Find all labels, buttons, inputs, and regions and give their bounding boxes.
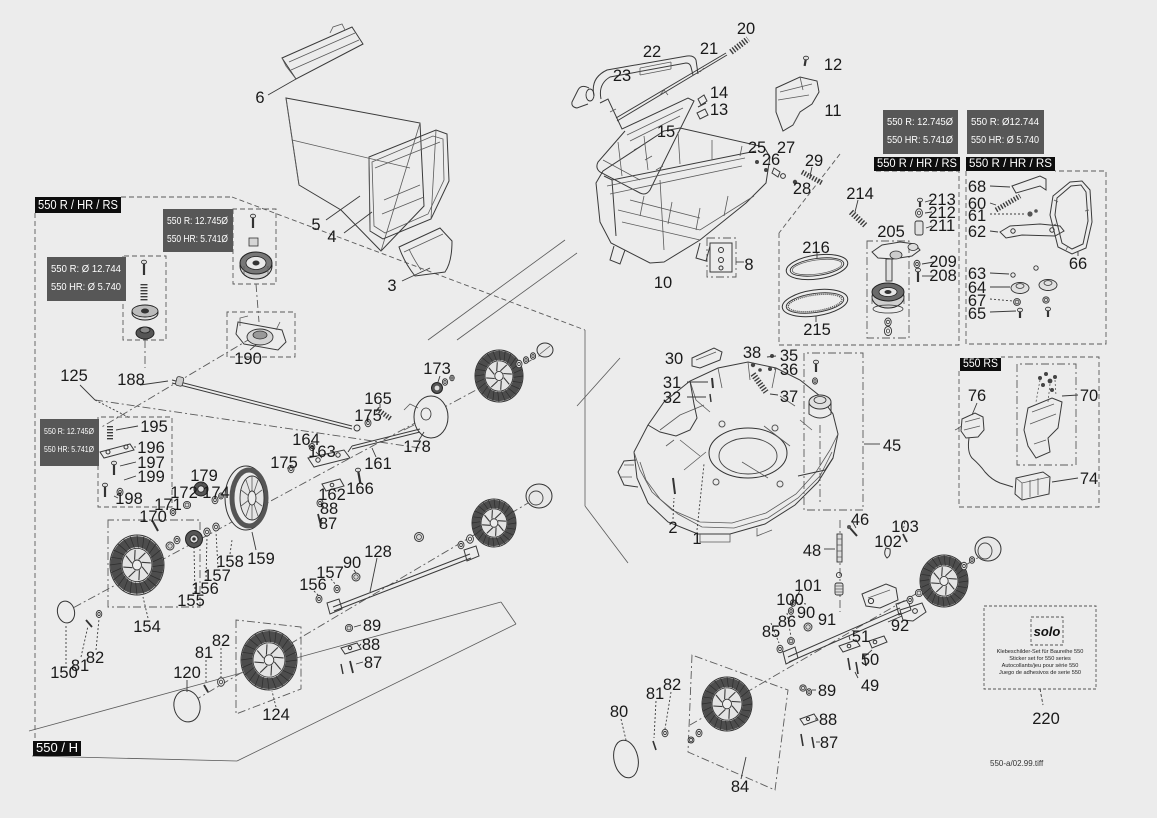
svg-text:48: 48 — [803, 542, 821, 560]
svg-text:550 / H: 550 / H — [36, 741, 78, 755]
svg-text:6: 6 — [255, 89, 264, 107]
svg-text:29: 29 — [805, 152, 823, 170]
svg-text:74: 74 — [1080, 470, 1098, 488]
svg-text:27: 27 — [777, 139, 795, 157]
svg-text:550 HR: Ø 5.740: 550 HR: Ø 5.740 — [51, 281, 121, 293]
svg-text:550 R / HR / RS: 550 R / HR / RS — [969, 156, 1052, 170]
svg-text:45: 45 — [883, 437, 901, 455]
svg-text:550 R: 12.745Ø: 550 R: 12.745Ø — [167, 215, 228, 227]
svg-text:154: 154 — [133, 618, 161, 636]
svg-text:87: 87 — [364, 654, 382, 672]
svg-text:8: 8 — [744, 256, 753, 274]
svg-text:3: 3 — [387, 277, 396, 295]
svg-text:15: 15 — [657, 123, 675, 141]
svg-text:161: 161 — [364, 455, 392, 473]
svg-text:38: 38 — [743, 344, 761, 362]
svg-text:37: 37 — [780, 388, 798, 406]
svg-text:550 R: Ø12.744: 550 R: Ø12.744 — [971, 116, 1039, 128]
svg-text:32: 32 — [663, 389, 681, 407]
svg-text:82: 82 — [663, 676, 681, 694]
svg-text:195: 195 — [140, 418, 168, 436]
svg-text:80: 80 — [610, 703, 628, 721]
svg-text:550 R: 12.745Ø: 550 R: 12.745Ø — [887, 116, 953, 128]
svg-text:85: 85 — [762, 623, 780, 641]
svg-text:87: 87 — [820, 734, 838, 752]
svg-text:21: 21 — [700, 40, 718, 58]
svg-text:208: 208 — [929, 267, 957, 285]
svg-text:Autocollants/jeu pour série 55: Autocollants/jeu pour série 550 — [1002, 663, 1079, 669]
svg-text:66: 66 — [1069, 255, 1087, 273]
svg-text:86: 86 — [778, 613, 796, 631]
svg-text:20: 20 — [737, 20, 755, 38]
svg-text:50: 50 — [861, 651, 879, 669]
svg-text:46: 46 — [851, 511, 869, 529]
svg-text:205: 205 — [877, 223, 905, 241]
svg-text:1: 1 — [692, 530, 701, 548]
svg-text:76: 76 — [968, 387, 986, 405]
svg-text:22: 22 — [643, 43, 661, 61]
svg-text:89: 89 — [363, 617, 381, 635]
svg-text:Klebeschilder-Set für Baureihe: Klebeschilder-Set für Baureihe 550 — [997, 649, 1084, 655]
svg-text:5: 5 — [311, 216, 320, 234]
svg-text:2: 2 — [668, 519, 677, 537]
svg-text:550 R: Ø 12.744: 550 R: Ø 12.744 — [51, 263, 121, 275]
svg-text:159: 159 — [247, 550, 275, 568]
svg-text:70: 70 — [1080, 387, 1098, 405]
svg-text:173: 173 — [423, 360, 451, 378]
svg-text:88: 88 — [362, 636, 380, 654]
svg-text:125: 125 — [60, 367, 88, 385]
svg-text:179: 179 — [190, 467, 218, 485]
svg-text:89: 89 — [818, 682, 836, 700]
svg-text:550 RS: 550 RS — [963, 356, 998, 370]
svg-text:170: 170 — [139, 508, 167, 526]
svg-text:163: 163 — [308, 443, 336, 461]
svg-text:550 R / HR / RS: 550 R / HR / RS — [877, 156, 957, 170]
svg-text:550 R: 12.745Ø: 550 R: 12.745Ø — [44, 426, 94, 436]
svg-text:82: 82 — [212, 632, 230, 650]
svg-text:156: 156 — [299, 576, 327, 594]
svg-text:174: 174 — [202, 484, 230, 502]
svg-text:49: 49 — [861, 677, 879, 695]
svg-text:550-a/02.99.tiff: 550-a/02.99.tiff — [990, 759, 1044, 768]
svg-text:90: 90 — [343, 554, 361, 572]
svg-text:Juego de adhesivos de serie 55: Juego de adhesivos de serie 550 — [999, 670, 1081, 676]
svg-text:188: 188 — [117, 371, 145, 389]
svg-text:84: 84 — [731, 778, 749, 796]
svg-text:550 HR: Ø 5.740: 550 HR: Ø 5.740 — [971, 134, 1039, 146]
svg-text:81: 81 — [195, 644, 213, 662]
svg-text:550 HR: 5.741Ø: 550 HR: 5.741Ø — [887, 134, 953, 146]
svg-text:166: 166 — [346, 480, 374, 498]
svg-text:120: 120 — [173, 664, 201, 682]
svg-text:90: 90 — [797, 604, 815, 622]
svg-text:91: 91 — [818, 611, 836, 629]
svg-text:198: 198 — [115, 490, 143, 508]
svg-text:28: 28 — [793, 180, 811, 198]
svg-text:216: 216 — [802, 239, 830, 257]
svg-text:199: 199 — [137, 468, 165, 486]
svg-text:165: 165 — [364, 390, 392, 408]
svg-text:23: 23 — [613, 67, 631, 85]
svg-text:190: 190 — [234, 350, 262, 368]
svg-text:68: 68 — [968, 178, 986, 196]
svg-text:87: 87 — [319, 515, 337, 533]
svg-text:178: 178 — [403, 438, 431, 456]
svg-text:82: 82 — [86, 649, 104, 667]
svg-text:62: 62 — [968, 223, 986, 241]
svg-text:128: 128 — [364, 543, 392, 561]
svg-text:92: 92 — [891, 617, 909, 635]
svg-text:211: 211 — [929, 217, 955, 235]
svg-text:14: 14 — [710, 84, 728, 102]
svg-text:155: 155 — [177, 592, 205, 610]
svg-text:36: 36 — [780, 361, 798, 379]
svg-text:88: 88 — [819, 711, 837, 729]
svg-text:30: 30 — [665, 350, 683, 368]
svg-text:65: 65 — [968, 305, 986, 323]
svg-text:215: 215 — [803, 321, 831, 339]
svg-text:solo: solo — [1034, 624, 1061, 639]
svg-text:12: 12 — [824, 56, 842, 74]
svg-text:220: 220 — [1032, 710, 1060, 728]
svg-text:81: 81 — [646, 685, 664, 703]
svg-text:550 HR: 5.741Ø: 550 HR: 5.741Ø — [167, 233, 228, 245]
svg-text:11: 11 — [824, 102, 841, 120]
svg-text:13: 13 — [710, 101, 728, 119]
svg-text:124: 124 — [262, 706, 290, 724]
svg-text:Sticker set for 550 series: Sticker set for 550 series — [1009, 656, 1071, 662]
svg-text:51: 51 — [852, 628, 870, 646]
svg-text:10: 10 — [654, 274, 672, 292]
svg-text:102: 102 — [874, 533, 902, 551]
svg-text:214: 214 — [846, 185, 874, 203]
svg-text:175: 175 — [354, 407, 382, 425]
svg-text:550 R / HR / RS: 550 R / HR / RS — [38, 198, 118, 212]
svg-text:550 HR: 5.741Ø: 550 HR: 5.741Ø — [44, 444, 94, 454]
svg-text:175: 175 — [270, 454, 298, 472]
svg-text:4: 4 — [327, 228, 336, 246]
